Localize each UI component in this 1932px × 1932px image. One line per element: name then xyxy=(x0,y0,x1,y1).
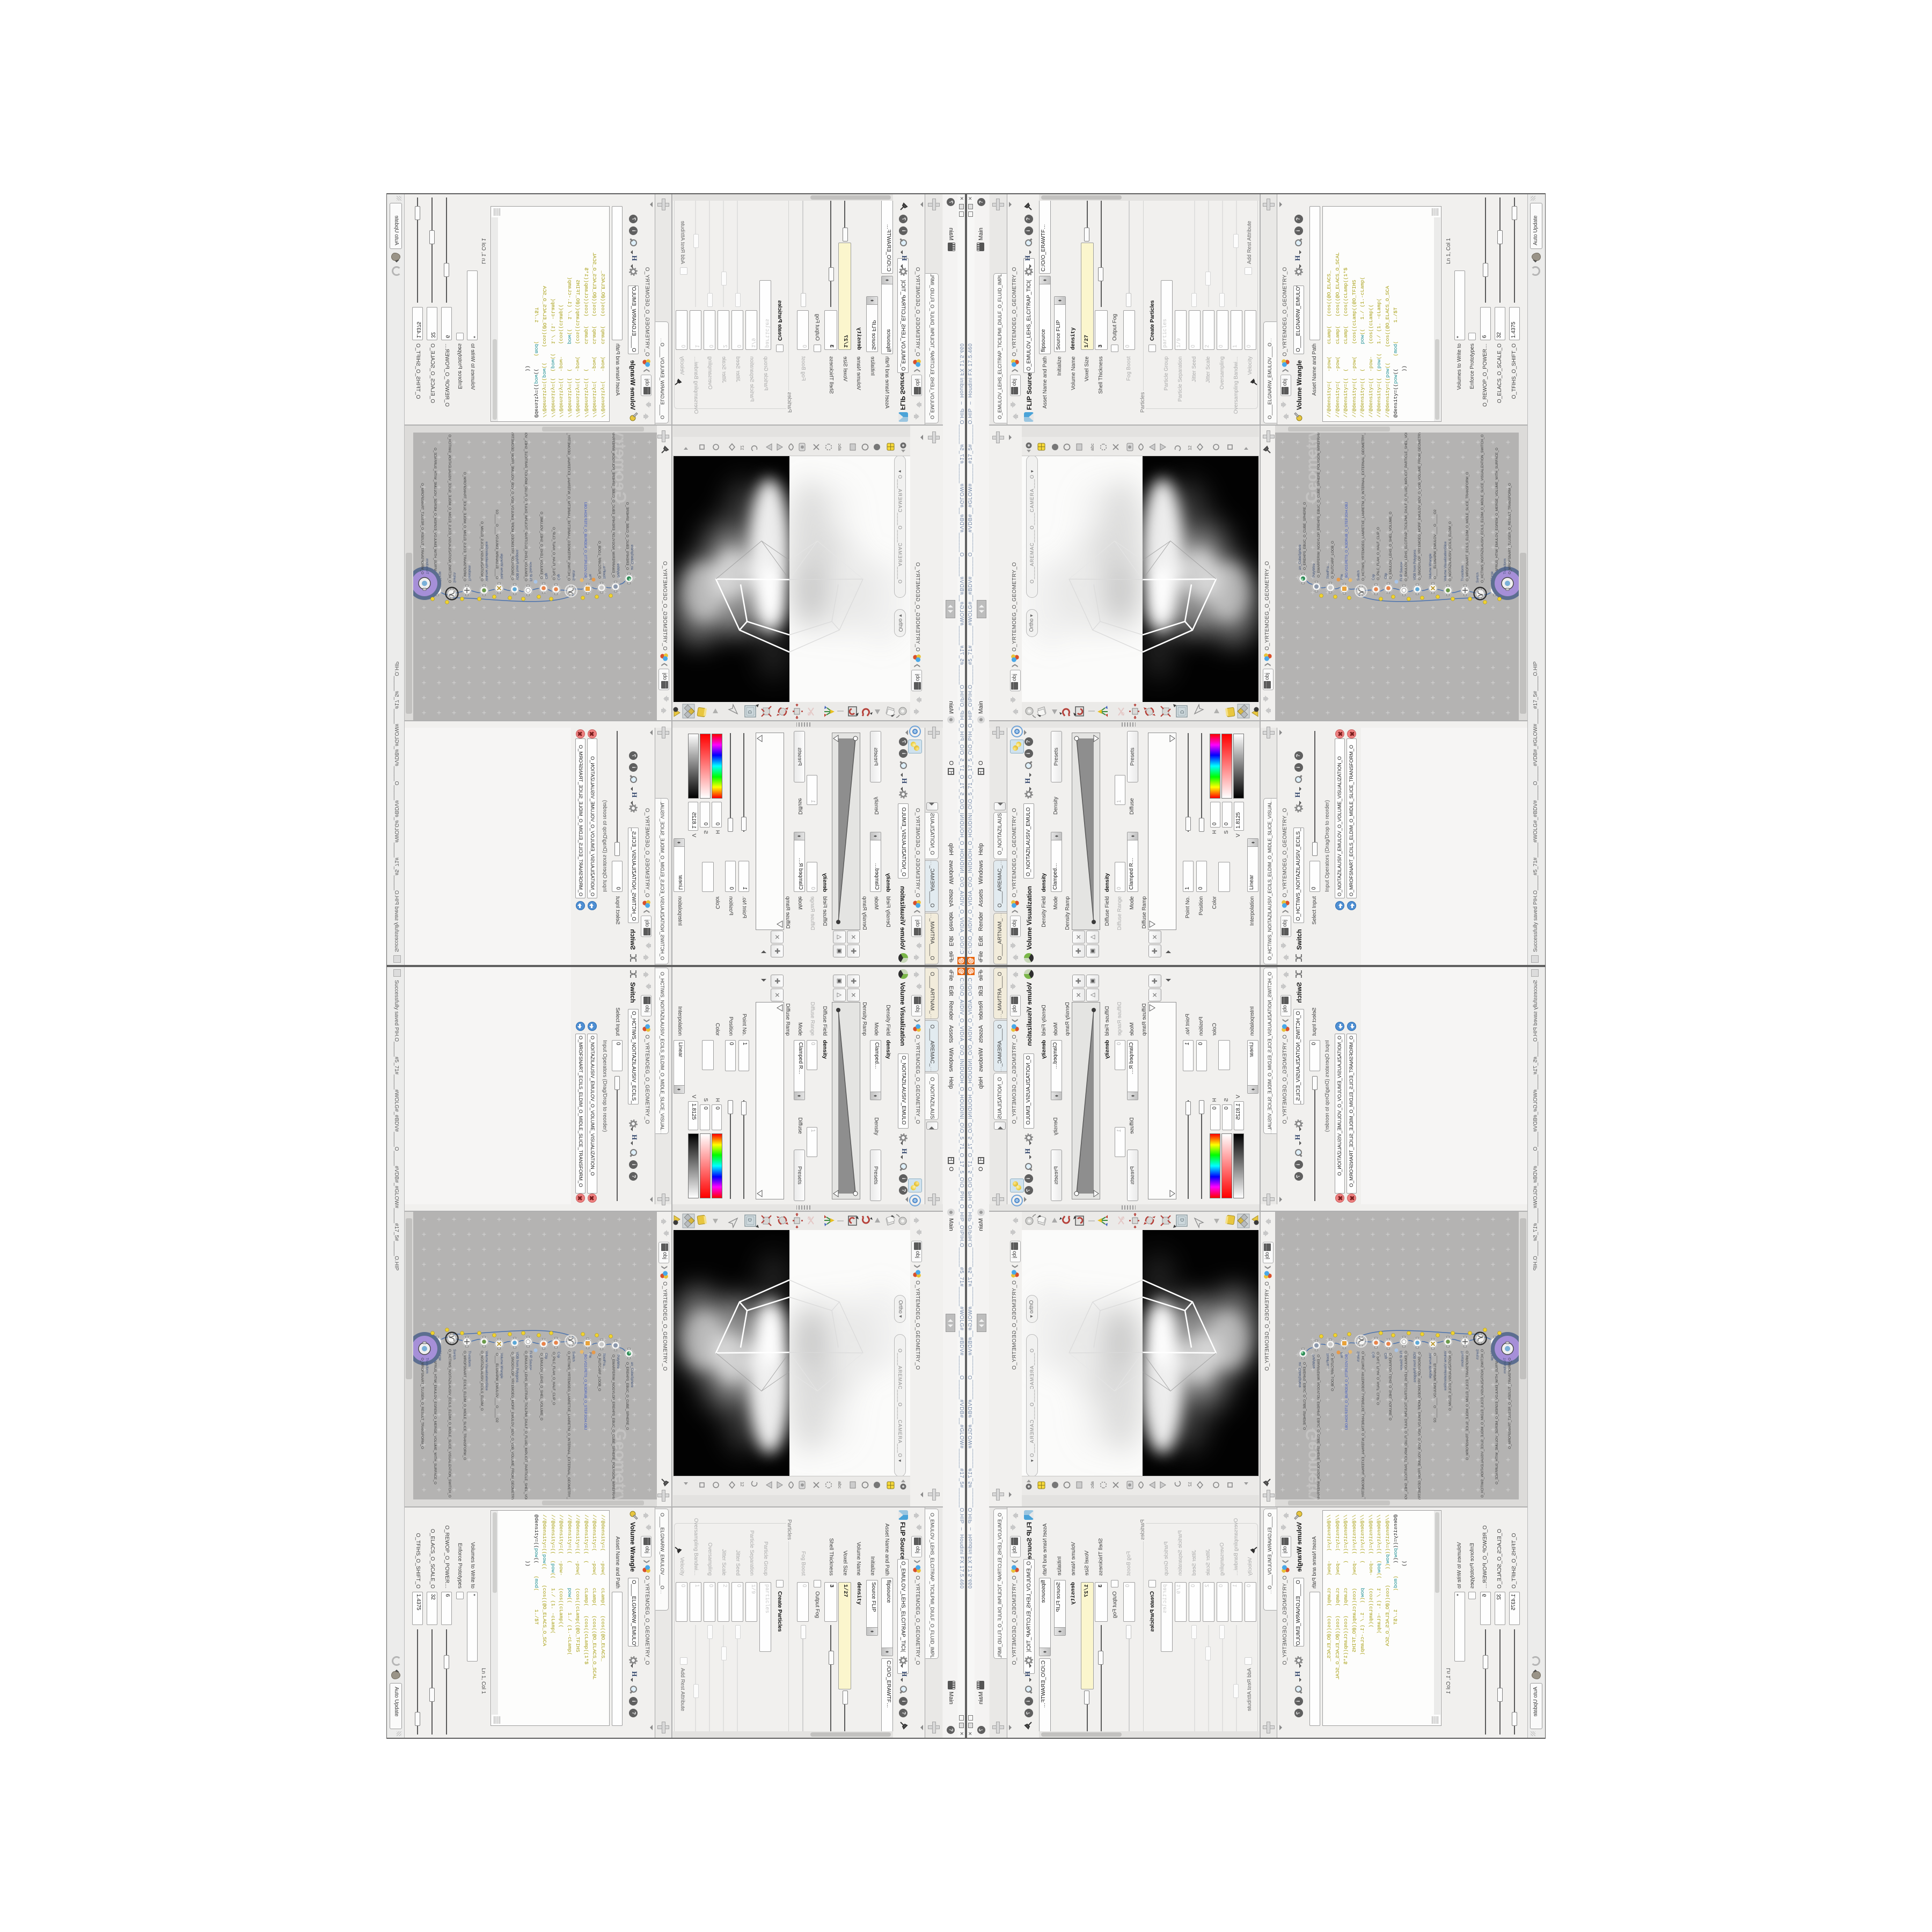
svg-text:Volume Wrangle: Volume Wrangle xyxy=(500,553,503,579)
svg-text:Clip: Clip xyxy=(1384,1353,1388,1359)
svg-text:Switch: Switch xyxy=(452,572,456,583)
svg-text:O_EMULOV_LEHS_ELCITRAP_TICILPM: O_EMULOV_LEHS_ELCITRAP_TICILPMI_DIULF_O_… xyxy=(524,426,528,581)
svg-text:Clip: Clip xyxy=(1384,573,1388,579)
svg-text:Volume Wrangle: Volume Wrangle xyxy=(500,1353,503,1379)
svg-text:_BO.VO3.PETS_O_N3DRUB_O_STEP.3: _BO.VO3.PETS_O_N3DRUB_O_STEP.3OI4.OBJ xyxy=(583,1352,587,1430)
svg-text:Clip: Clip xyxy=(544,1353,548,1359)
svg-text:O____ELGNARW_EMULOV____O_____O: O____ELGNARW_EMULOV____O_____O2 xyxy=(1433,509,1437,579)
svg-text:Switch: Switch xyxy=(572,1351,575,1362)
svg-text:Volume VisualizationSlice: Volume VisualizationSlice xyxy=(1444,1351,1447,1391)
svg-text:O_RUTCARF_LOOB_O: O_RUTCARF_LOOB_O xyxy=(1331,541,1335,579)
svg-text:O_MROFSNART_ECILS_ELDIM_O_MIDL: O_MROFSNART_ECILS_ELDIM_O_MIDLE_SLICE_TR… xyxy=(463,472,466,581)
svg-text:Clip: Clip xyxy=(1372,1352,1375,1358)
svg-text:abc: abc xyxy=(1089,443,1095,451)
svg-text:an_CubeSphere: an_CubeSphere xyxy=(1298,1362,1302,1388)
svg-text:O_SNOGYLOP_YRTEMOEG_MORF_EMULO: O_SNOGYLOP_YRTEMOEG_MORF_EMULOV_BDV_O_VD… xyxy=(510,1352,514,1506)
svg-text:_BO.VO3.PETS_O_N3DRUB_O_STEP.3: _BO.VO3.PETS_O_N3DRUB_O_STEP.3OI4.OBJ xyxy=(1345,1352,1349,1430)
svg-text:O_EMULOV_LEHS_O_SHEL_VOLUME_O: O_EMULOV_LEHS_O_SHEL_VOLUME_O xyxy=(1389,1353,1393,1421)
svg-text:abc: abc xyxy=(837,1481,843,1489)
svg-text:O_ECAFRUS_HTIW_EMULOV_EGREM_O_: O_ECAFRUS_HTIW_EMULOV_EGREM_O_MERGE_VOLU… xyxy=(433,1351,437,1484)
svg-text:File: File xyxy=(1340,574,1344,580)
svg-text:D: D xyxy=(1180,710,1185,714)
svg-text:O_SNOGYLOP_YRTEMOEG_MORF_EMULO: O_SNOGYLOP_YRTEMOEG_MORF_EMULOV_BDV_O_VD… xyxy=(1418,1352,1422,1506)
svg-text:BoolFra…: BoolFra… xyxy=(602,563,606,579)
svg-text:PolyWire: PolyWire xyxy=(616,1355,620,1368)
svg-text:O_EREHPS_EBUC_O_CUBE_SPHERE_O: O_EREHPS_EBUC_O_CUBE_SPHERE_O xyxy=(1303,1362,1307,1430)
svg-text:O_PILC_FLAH_O_HALF_CLIP_O: O_PILC_FLAH_O_HALF_CLIP_O xyxy=(1377,1352,1380,1405)
svg-text:O_HCTIWS_YRTEMOEG_LANRETXE_LAN: O_HCTIWS_YRTEMOEG_LANRETXE_LANRETNI_O_IN… xyxy=(567,426,570,581)
svg-text:O_EMULOV_LEHS_O_SHEL_VOLUME_O: O_EMULOV_LEHS_O_SHEL_VOLUME_O xyxy=(1389,511,1393,579)
svg-text:Switch: Switch xyxy=(1357,1351,1360,1362)
svg-text:O_RUTCARF_LOOB_O: O_RUTCARF_LOOB_O xyxy=(597,541,601,579)
svg-text:Transform: Transform xyxy=(1461,566,1465,581)
svg-text:O_MROFSNART_ECILS_ELDIM_O_MIDL: O_MROFSNART_ECILS_ELDIM_O_MIDLE_SLICE_TR… xyxy=(463,1351,466,1460)
svg-text:FLIP Source: FLIP Source xyxy=(1400,1351,1403,1370)
svg-text:O_PILC_FLAH_O_HALF_CLIP_O: O_PILC_FLAH_O_HALF_CLIP_O xyxy=(1377,527,1380,580)
svg-text:Clip: Clip xyxy=(1372,574,1375,580)
svg-text:Volume Wrangle: Volume Wrangle xyxy=(1429,553,1432,579)
svg-text:O_ECAFRUS_HTIW_EMULOV_EGREM_O_: O_ECAFRUS_HTIW_EMULOV_EGREM_O_MERGE_VOLU… xyxy=(1495,448,1499,581)
svg-text:O_EMARFERIW_NOGYLOP_EREHPS_EBU: O_EMARFERIW_NOGYLOP_EREHPS_EBUC_O_CUBE_S… xyxy=(611,426,615,577)
svg-text:O____ELGNARW_EMULOV____O_____O: O____ELGNARW_EMULOV____O_____O2 xyxy=(495,1353,499,1423)
svg-text:O_NOITAZILAUSIV_ECILS_ELDIM_O: O_NOITAZILAUSIV_ECILS_ELDIM_O xyxy=(480,1351,484,1411)
svg-text:O_EMULOV_LEHS_ELCITRAP_TICILPM: O_EMULOV_LEHS_ELCITRAP_TICILPMI_DIULF_O_… xyxy=(1404,1351,1408,1506)
svg-text:Clip: Clip xyxy=(557,1352,560,1358)
svg-text:O_EREHPS_EBUC_O_CUBE_SPHERE_O: O_EREHPS_EBUC_O_CUBE_SPHERE_O xyxy=(625,1362,629,1430)
svg-text:BoolFra…: BoolFra… xyxy=(1326,1353,1330,1369)
svg-text:Clip: Clip xyxy=(544,573,548,579)
svg-text:O_PILC_FLAH_O_HALF_CLIP_O: O_PILC_FLAH_O_HALF_CLIP_O xyxy=(552,527,555,580)
svg-text:Transform: Transform xyxy=(1461,1351,1465,1366)
svg-text:VDB from Polygons: VDB from Polygons xyxy=(515,1352,519,1382)
svg-text:an_CubeSphere: an_CubeSphere xyxy=(630,544,634,570)
svg-text:File: File xyxy=(1340,1352,1344,1358)
svg-text:O_EREHPS_EBUC_O_CUBE_SPHERE_O: O_EREHPS_EBUC_O_CUBE_SPHERE_O xyxy=(625,502,629,570)
svg-text:12: 12 xyxy=(740,1482,744,1487)
svg-text:Transform: Transform xyxy=(1503,1358,1507,1373)
svg-text:O_EMARFERIW_NOGYLOP_EREHPS_EBU: O_EMARFERIW_NOGYLOP_EREHPS_EBUC_O_CUBE_S… xyxy=(1317,1355,1321,1506)
svg-text:O_MROFSNART_ECILS_ELDIM_O_MIDL: O_MROFSNART_ECILS_ELDIM_O_MIDLE_SLICE_TR… xyxy=(1466,1351,1469,1460)
svg-text:O_HCTIWS_NOITAZILAUSIV_ECILS_E: O_HCTIWS_NOITAZILAUSIV_ECILS_ELDIM_O_MID… xyxy=(1481,1349,1484,1497)
svg-text:Switch: Switch xyxy=(1476,1349,1480,1360)
svg-text:Transform: Transform xyxy=(467,566,471,581)
svg-text:O_RUTCARF_LOOB_O: O_RUTCARF_LOOB_O xyxy=(597,1353,601,1391)
svg-text:O_HCTIWS_NOITAZILAUSIV_ECILS_E: O_HCTIWS_NOITAZILAUSIV_ECILS_ELDIM_O_MID… xyxy=(448,435,451,583)
svg-text:_BO.VO3.PETS_O_N3DRUB_O_STEP.3: _BO.VO3.PETS_O_N3DRUB_O_STEP.3OI4.OBJ xyxy=(1345,502,1349,580)
svg-text:VDB from Polygons: VDB from Polygons xyxy=(1413,550,1417,580)
svg-text:O_HCTIWS_YRTEMOEG_LANRETXE_LAN: O_HCTIWS_YRTEMOEG_LANRETXE_LANRETNI_O_IN… xyxy=(1362,426,1365,581)
svg-text:PolyWire: PolyWire xyxy=(1312,1355,1316,1368)
svg-text:Volume VisualizationSlice: Volume VisualizationSlice xyxy=(1444,541,1447,581)
svg-text:Volume VisualizationSlice: Volume VisualizationSlice xyxy=(485,541,488,581)
svg-text:Switch: Switch xyxy=(1357,570,1360,581)
svg-text:Transform: Transform xyxy=(425,559,429,574)
svg-text:12: 12 xyxy=(1188,1482,1192,1487)
svg-text:O_HCTIWS_YRTEMOEG_LANRETXE_LAN: O_HCTIWS_YRTEMOEG_LANRETXE_LANRETNI_O_IN… xyxy=(567,1351,570,1506)
svg-text:O_PILC_FLAH_O_HALF_CLIP_O: O_PILC_FLAH_O_HALF_CLIP_O xyxy=(552,1352,555,1405)
svg-text:Transform: Transform xyxy=(467,1351,471,1366)
svg-text:PolyWire: PolyWire xyxy=(616,563,620,577)
svg-text:FLIP Source: FLIP Source xyxy=(529,1351,532,1370)
svg-text:File: File xyxy=(588,574,592,580)
svg-text:O_EMARFERIW_NOGYLOP_EREHPS_EBU: O_EMARFERIW_NOGYLOP_EREHPS_EBUC_O_CUBE_S… xyxy=(1317,426,1321,577)
svg-text:Transform: Transform xyxy=(1503,559,1507,574)
svg-text:abc: abc xyxy=(837,443,843,451)
svg-text:O_EMARFERIW_NOGYLOP_EREHPS_EBU: O_EMARFERIW_NOGYLOP_EREHPS_EBUC_O_CUBE_S… xyxy=(611,1355,615,1506)
svg-text:O_NOITAZILAUSIV_ECILS_ELDIM_O: O_NOITAZILAUSIV_ECILS_ELDIM_O xyxy=(1448,522,1452,582)
svg-text:_BO.VO3.PETS_O_N3DRUB_O_STEP.3: _BO.VO3.PETS_O_N3DRUB_O_STEP.3OI4.OBJ xyxy=(583,502,587,580)
svg-text:O_NOITAZILAUSIV_ECILS_ELDIM_O: O_NOITAZILAUSIV_ECILS_ELDIM_O xyxy=(1448,1351,1452,1411)
svg-text:O_MROFSNART_TLUSER_O_RESULT_TR: O_MROFSNART_TLUSER_O_RESULT_TRANSFORM_O xyxy=(1508,483,1512,574)
svg-text:PolyWire: PolyWire xyxy=(1312,563,1316,577)
svg-text:O_RUTCARF_LOOB_O: O_RUTCARF_LOOB_O xyxy=(1331,1353,1335,1391)
svg-text:O_EREHPS_EBUC_O_CUBE_SPHERE_O: O_EREHPS_EBUC_O_CUBE_SPHERE_O xyxy=(1303,502,1307,570)
svg-text:an_CubeSphere: an_CubeSphere xyxy=(1298,544,1302,570)
svg-text:Clip: Clip xyxy=(557,574,560,580)
svg-text:BoolFra…: BoolFra… xyxy=(602,1353,606,1369)
svg-text:File: File xyxy=(588,1352,592,1358)
svg-text:O_EMULOV_LEHS_O_SHEL_VOLUME_O: O_EMULOV_LEHS_O_SHEL_VOLUME_O xyxy=(539,1353,543,1421)
svg-text:Switch: Switch xyxy=(1476,572,1480,583)
svg-text:O____ELGNARW_EMULOV____O_____O: O____ELGNARW_EMULOV____O_____O2 xyxy=(1433,1353,1437,1423)
svg-text:O_HCTIWS_NOITAZILAUSIV_ECILS_E: O_HCTIWS_NOITAZILAUSIV_ECILS_ELDIM_O_MID… xyxy=(1481,435,1484,583)
svg-text:O_NOITAZILAUSIV_ECILS_ELDIM_O: O_NOITAZILAUSIV_ECILS_ELDIM_O xyxy=(480,522,484,582)
svg-text:FLIP Source: FLIP Source xyxy=(529,562,532,581)
svg-text:Transform: Transform xyxy=(425,1358,429,1373)
svg-text:D: D xyxy=(747,1218,752,1222)
svg-text:12: 12 xyxy=(740,445,744,450)
svg-text:O_ECAFRUS_HTIW_EMULOV_EGREM_O_: O_ECAFRUS_HTIW_EMULOV_EGREM_O_MERGE_VOLU… xyxy=(433,448,437,581)
svg-text:Volume VisualizationSlice: Volume VisualizationSlice xyxy=(485,1351,488,1391)
svg-text:O_MROFSNART_TLUSER_O_RESULT_TR: O_MROFSNART_TLUSER_O_RESULT_TRANSFORM_O xyxy=(420,1358,424,1449)
svg-text:Switch: Switch xyxy=(572,570,575,581)
svg-text:O_HCTIWS_NOITAZILAUSIV_ECILS_E: O_HCTIWS_NOITAZILAUSIV_ECILS_ELDIM_O_MID… xyxy=(448,1349,451,1497)
svg-text:O_HCTIWS_YRTEMOEG_LANRETXE_LAN: O_HCTIWS_YRTEMOEG_LANRETXE_LANRETNI_O_IN… xyxy=(1362,1351,1365,1506)
svg-text:O_MROFSNART_ECILS_ELDIM_O_MIDL: O_MROFSNART_ECILS_ELDIM_O_MIDLE_SLICE_TR… xyxy=(1466,472,1469,581)
svg-text:VDB from Polygons: VDB from Polygons xyxy=(1413,1352,1417,1382)
svg-text:Volume Wrangle: Volume Wrangle xyxy=(1429,1353,1432,1379)
svg-text:O_EMULOV_LEHS_ELCITRAP_TICILPM: O_EMULOV_LEHS_ELCITRAP_TICILPMI_DIULF_O_… xyxy=(1404,426,1408,581)
svg-text:O____ELGNARW_EMULOV____O_____O: O____ELGNARW_EMULOV____O_____O2 xyxy=(495,509,499,579)
svg-text:O_MROFSNART_TLUSER_O_RESULT_TR: O_MROFSNART_TLUSER_O_RESULT_TRANSFORM_O xyxy=(420,483,424,574)
svg-text:12: 12 xyxy=(1188,445,1192,450)
svg-text:D: D xyxy=(1180,1218,1185,1222)
svg-text:O_EMULOV_LEHS_O_SHEL_VOLUME_O: O_EMULOV_LEHS_O_SHEL_VOLUME_O xyxy=(539,511,543,579)
svg-text:O_SNOGYLOP_YRTEMOEG_MORF_EMULO: O_SNOGYLOP_YRTEMOEG_MORF_EMULOV_BDV_O_VD… xyxy=(510,426,514,580)
svg-text:FLIP Source: FLIP Source xyxy=(1400,562,1403,581)
svg-text:abc: abc xyxy=(1089,1481,1095,1489)
svg-text:O_EMULOV_LEHS_ELCITRAP_TICILPM: O_EMULOV_LEHS_ELCITRAP_TICILPMI_DIULF_O_… xyxy=(524,1351,528,1506)
svg-text:O_ECAFRUS_HTIW_EMULOV_EGREM_O_: O_ECAFRUS_HTIW_EMULOV_EGREM_O_MERGE_VOLU… xyxy=(1495,1351,1499,1484)
svg-text:VDB from Polygons: VDB from Polygons xyxy=(515,550,519,580)
svg-text:O_MROFSNART_TLUSER_O_RESULT_TR: O_MROFSNART_TLUSER_O_RESULT_TRANSFORM_O xyxy=(1508,1358,1512,1449)
svg-text:O_SNOGYLOP_YRTEMOEG_MORF_EMULO: O_SNOGYLOP_YRTEMOEG_MORF_EMULOV_BDV_O_VD… xyxy=(1418,426,1422,580)
svg-text:BoolFra…: BoolFra… xyxy=(1326,563,1330,579)
svg-text:an_CubeSphere: an_CubeSphere xyxy=(630,1362,634,1388)
svg-text:Switch: Switch xyxy=(452,1349,456,1360)
svg-text:D: D xyxy=(747,710,752,714)
